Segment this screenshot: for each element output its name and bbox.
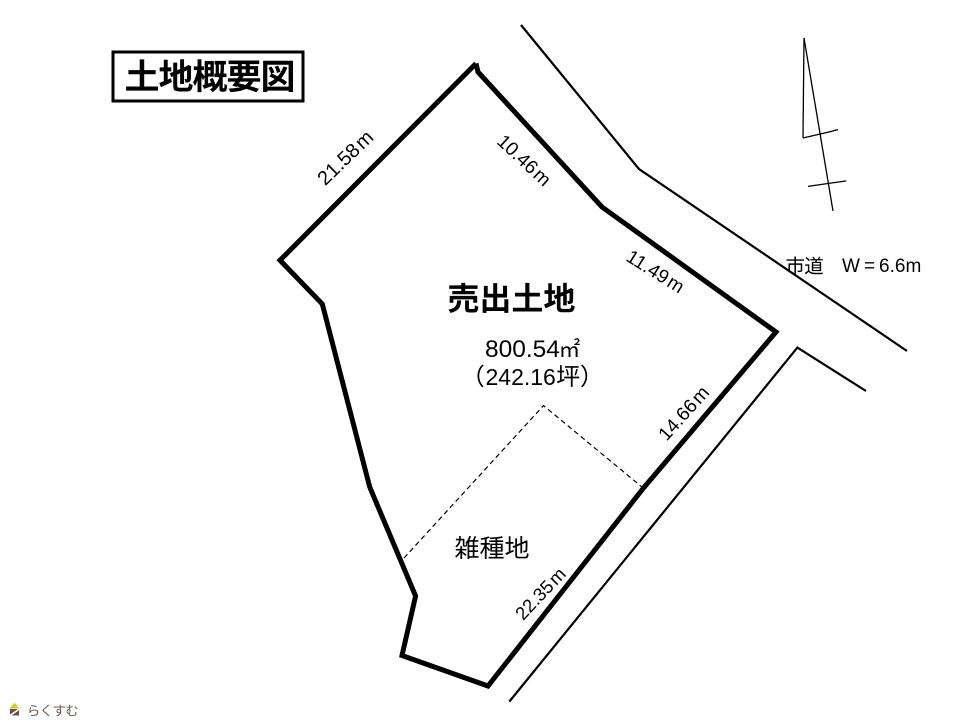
svg-text:W=6.6m: W=6.6m — [842, 256, 921, 277]
svg-text:800.54: 800.54 — [485, 336, 560, 363]
svg-text:242.16: 242.16 — [486, 364, 556, 390]
